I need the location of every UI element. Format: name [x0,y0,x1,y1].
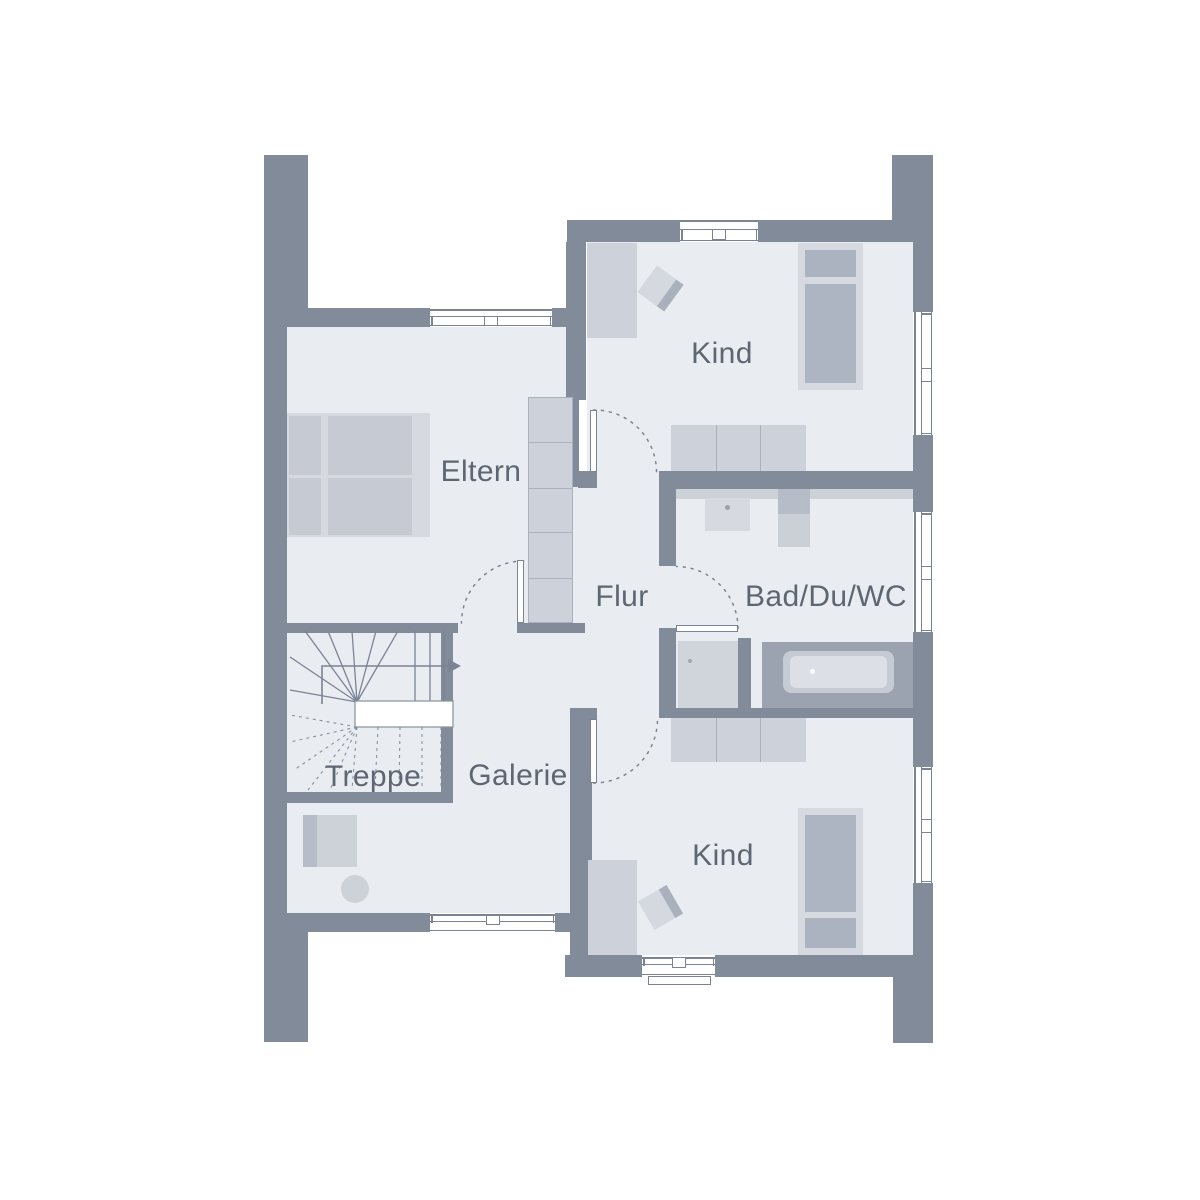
shower [678,641,738,708]
mattress [805,815,856,912]
wall-kind-bad-top [659,471,933,489]
door-leaf-eltern [517,560,524,623]
window-galerie [430,913,555,932]
bed-kind-bottom [798,808,863,955]
wc-bowl [778,514,810,547]
window-kind-bottom-east [913,767,933,883]
door-opening-kind-top [597,471,659,489]
armchair-galerie [303,815,357,867]
window-kind-bottom [642,955,715,977]
wall-bad-bottom [659,708,933,718]
wall-eltern-bottom-a [264,623,458,633]
door-opening-eltern [458,623,517,633]
room-label-kind-bottom: Kind [692,839,754,873]
room-label-bad: Bad/Du/WC [745,580,907,614]
wall-eltern-top-b [552,308,567,327]
wc-tank [778,489,810,514]
bathtub-faucet [810,669,815,674]
room-label-galerie: Galerie [468,759,568,793]
wall-kind-top-a [567,220,680,242]
door-leaf-kind-bottom [590,719,597,783]
room-label-kind-top: Kind [691,337,753,371]
armchair-back [303,815,317,867]
pillow [289,478,321,535]
sink-drain [725,505,730,510]
sink [705,498,750,531]
wardrobe-kind-bottom [588,860,637,955]
side-table-galerie [341,875,369,903]
bed-eltern [287,413,430,537]
door-opening-kind-bottom [597,708,659,718]
window-eltern [430,308,552,327]
mattress [328,416,412,475]
window-kind-top [680,219,758,242]
wall-kind-bottom-a [565,955,642,977]
pillow [289,416,321,475]
wall-eltern-top-a [287,308,430,327]
closet-eltern [529,398,572,622]
wall-bad-west-upper [659,489,676,566]
bathtub [783,651,894,693]
window-kind-top-east [913,312,933,435]
wardrobe-kind-top [587,243,637,338]
mattress [805,284,856,383]
wall-galerie-bottom-a [264,913,430,932]
wall-right-top [892,155,933,242]
sideboard-kind-bottom [671,718,806,762]
wall-left-bottom [264,913,308,1042]
bathtub-basin [790,656,887,688]
wall-eltern-bottom-b [517,623,585,633]
shower-drain [688,659,692,663]
wall-shower-stub [738,638,751,708]
wall-left [264,310,287,913]
mattress [328,478,412,535]
wall-left-top [264,155,308,312]
room-label-flur: Flur [595,580,648,614]
wall-kind-bottom-b [715,955,933,977]
bed-kind-top [798,243,863,390]
sideboard-kind-top [671,425,806,471]
wall-galerie-bottom-b [555,913,570,932]
pillow [805,918,856,948]
bathtub-surround [762,642,913,708]
pillow [805,250,856,277]
wall-bad-west-lower [659,628,676,718]
room-label-treppe: Treppe [325,760,421,794]
window-sill-kind-bottom [648,976,711,985]
door-opening-bad [659,566,676,628]
door-leaf-bad [676,625,738,632]
wall-stairs-east [441,633,453,802]
room-label-eltern: Eltern [441,455,522,489]
door-leaf-kind-top [590,410,597,472]
window-bad-east [913,512,933,632]
wall-eltern-kind [566,242,586,400]
floorplan: Eltern Kind Flur Bad/Du/WC Treppe Galeri… [0,0,1200,1200]
wall-kind-door-stub [578,471,597,488]
